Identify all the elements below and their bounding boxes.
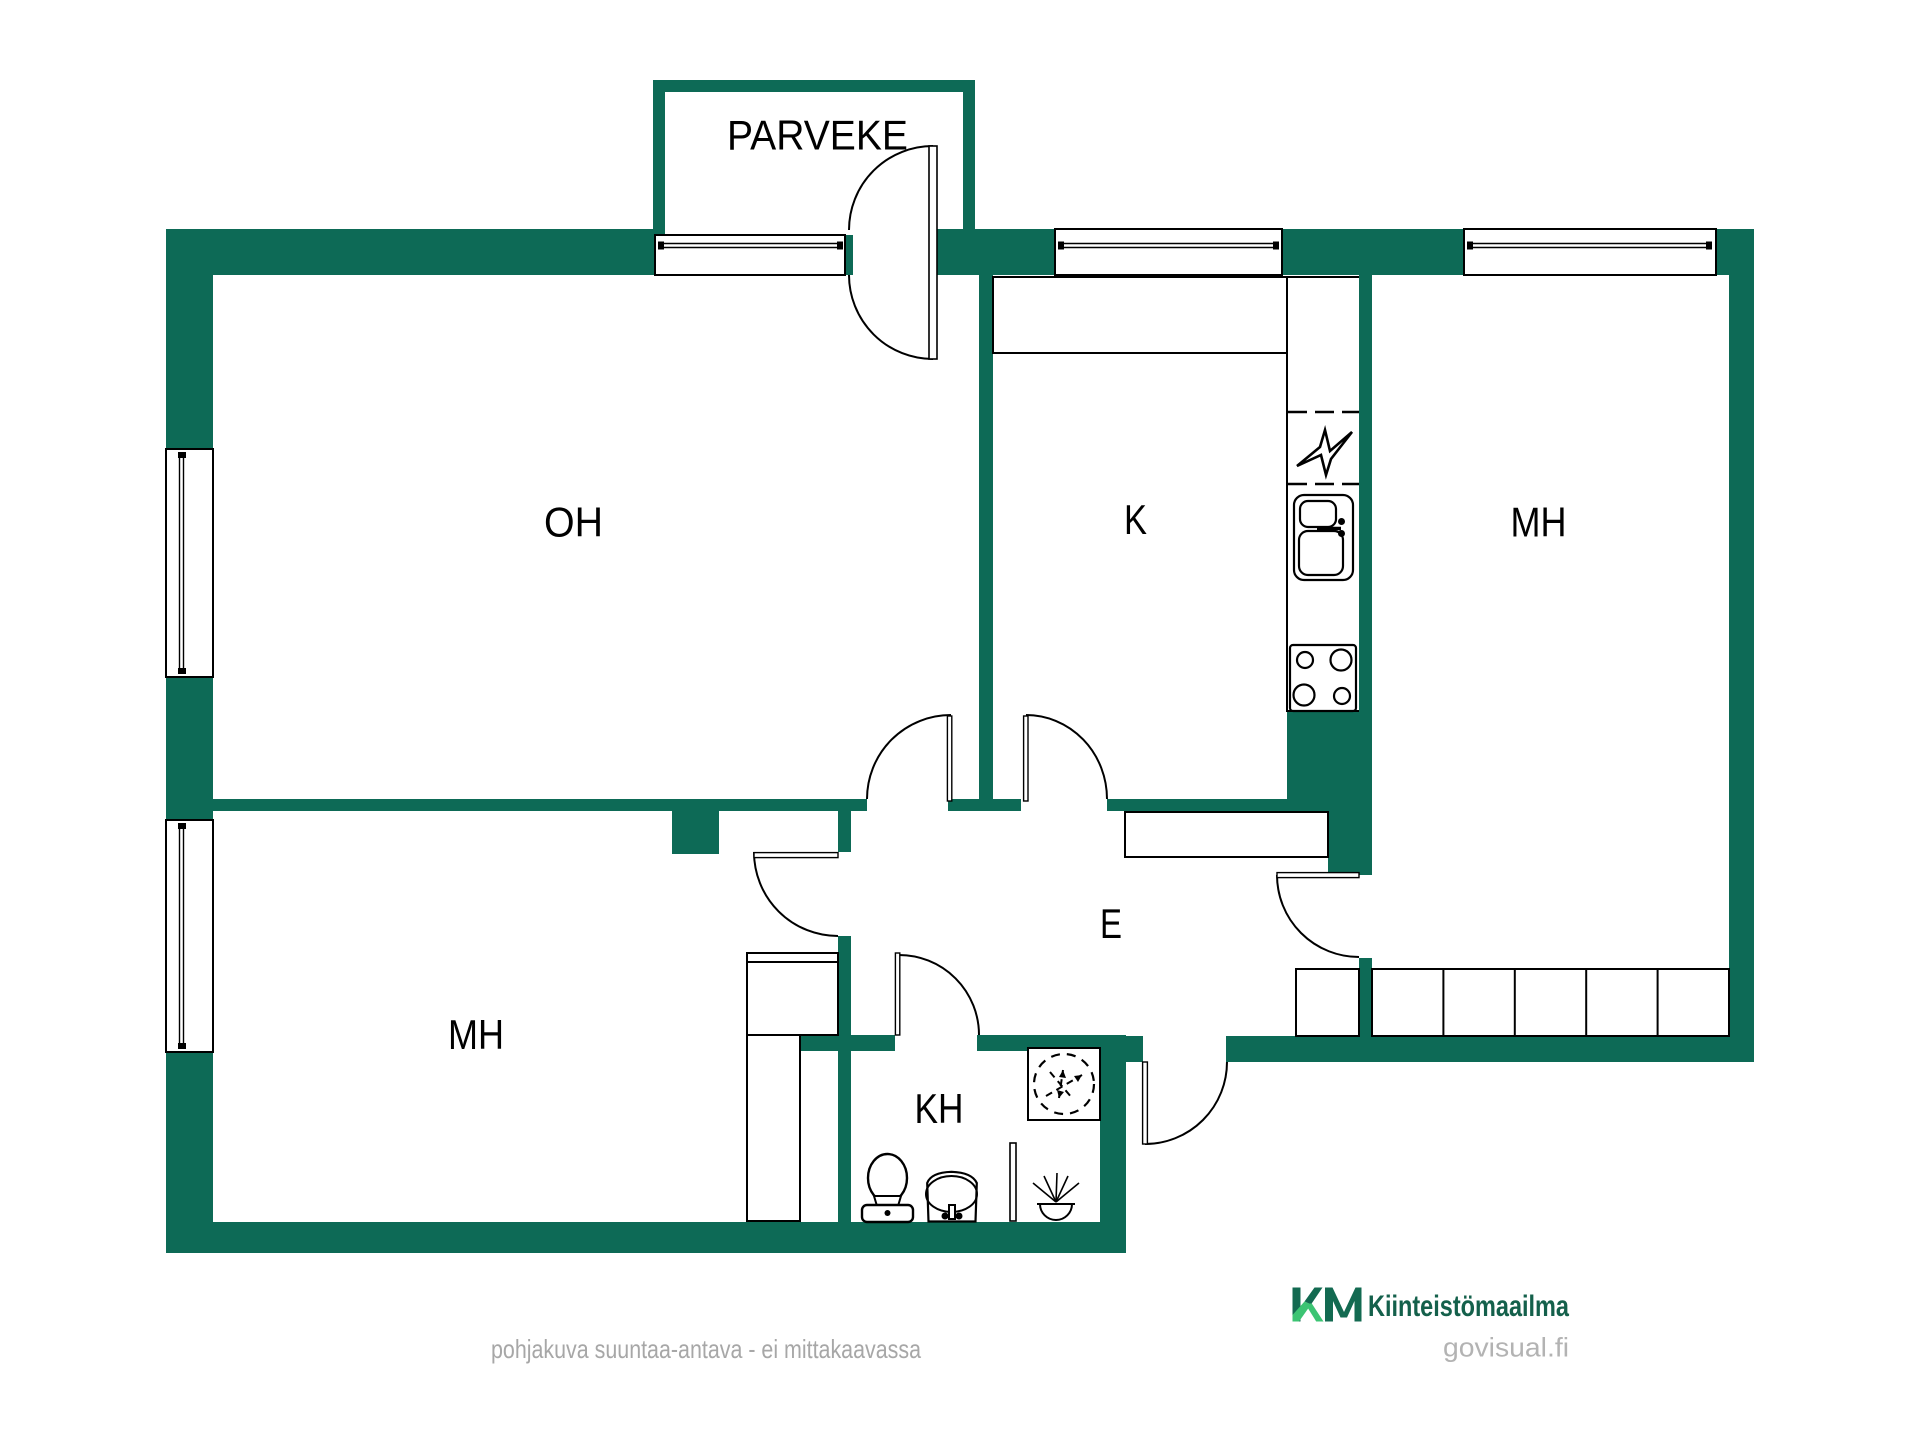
svg-text:OH: OH (544, 499, 603, 546)
svg-text:E: E (1100, 900, 1122, 947)
svg-text:pohjakuva suuntaa-antava - ei: pohjakuva suuntaa-antava - ei mittakaava… (491, 1334, 921, 1364)
svg-text:K: K (1124, 496, 1147, 543)
svg-text:MH: MH (1511, 499, 1567, 546)
svg-text:govisual.fi: govisual.fi (1443, 1333, 1569, 1363)
svg-text:MH: MH (448, 1011, 504, 1058)
svg-text:Kiinteistömaailma: Kiinteistömaailma (1368, 1290, 1569, 1323)
svg-text:PARVEKE: PARVEKE (727, 112, 908, 159)
svg-text:KH: KH (915, 1085, 964, 1132)
